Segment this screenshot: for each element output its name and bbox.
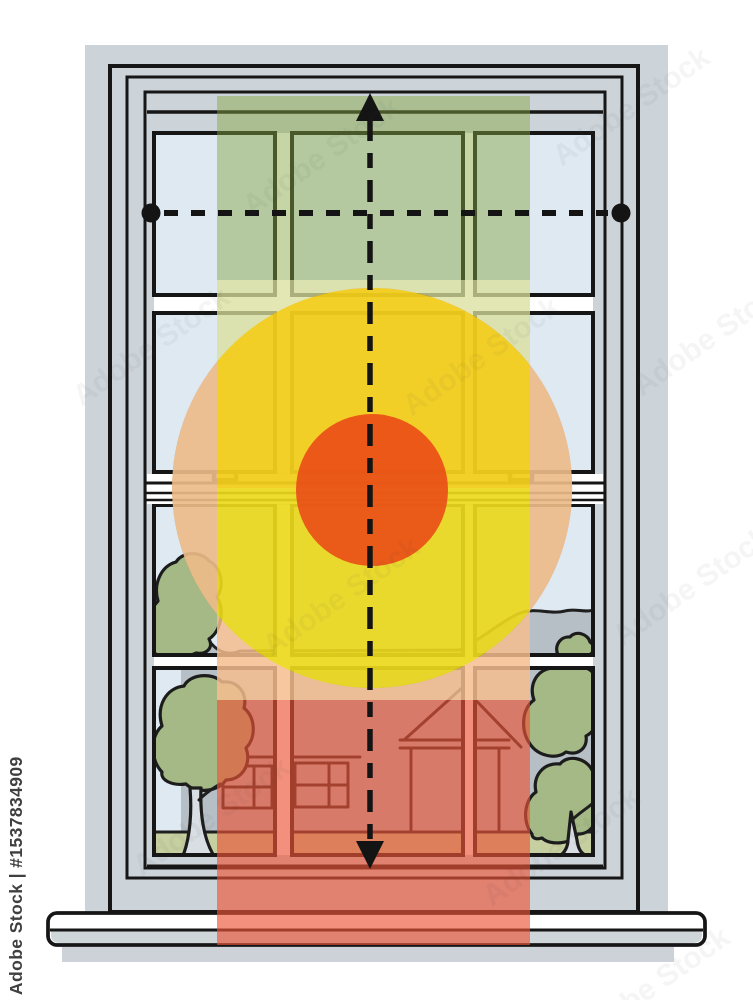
sill-shadow [62,947,674,962]
dimension-dot-right [612,204,631,223]
stock-credit-watermark: Adobe Stock | #1537834909 [6,756,27,995]
dimension-dot-left [142,204,161,223]
stock-illustration-sash-window: Adobe Stock | #1537834909 Adobe Stock Ad… [0,0,753,1000]
window-illustration-canvas [0,0,753,1000]
